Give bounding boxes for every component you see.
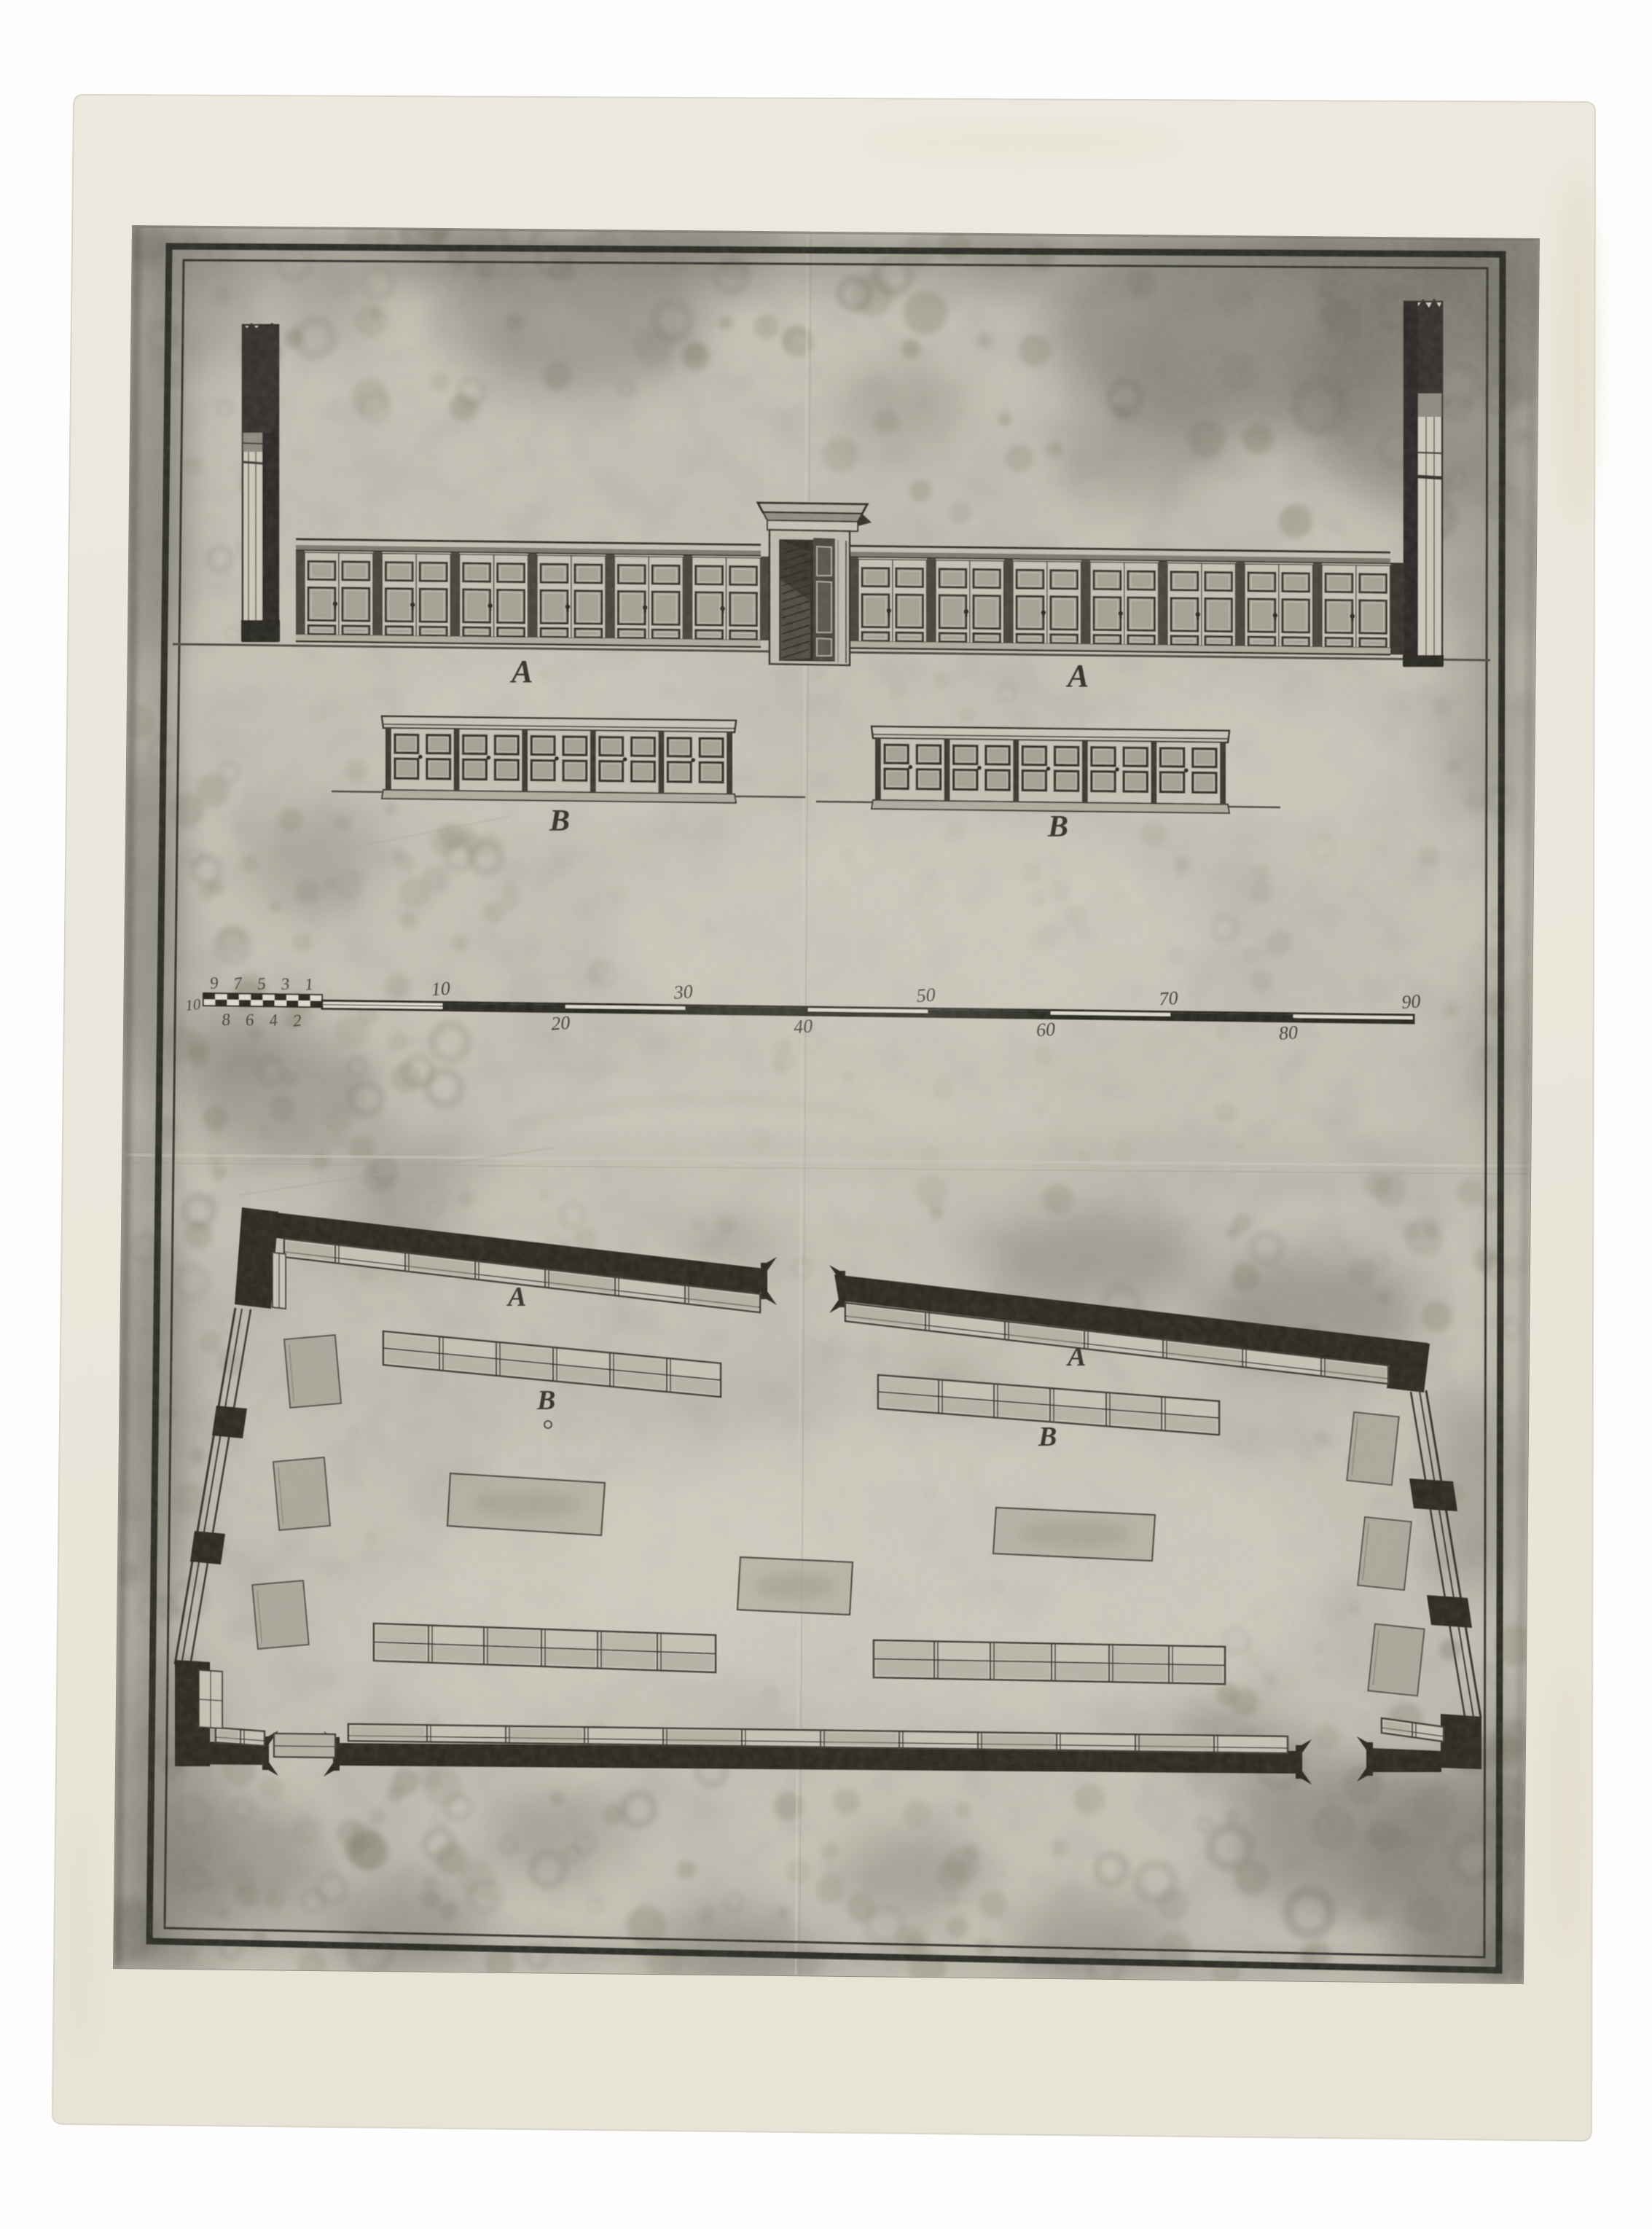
svg-text:B: B: [1047, 810, 1068, 844]
svg-text:3: 3: [279, 974, 290, 993]
svg-text:A: A: [506, 1282, 526, 1312]
svg-text:30: 30: [673, 981, 694, 1003]
svg-text:10: 10: [184, 995, 202, 1014]
svg-text:B: B: [1038, 1422, 1057, 1452]
svg-text:A: A: [1066, 1341, 1086, 1372]
svg-text:60: 60: [1036, 1019, 1056, 1041]
svg-text:80: 80: [1278, 1022, 1299, 1044]
svg-text:A: A: [1065, 658, 1089, 694]
svg-text:B: B: [536, 1385, 555, 1416]
svg-text:10: 10: [431, 978, 451, 1000]
svg-text:20: 20: [550, 1012, 571, 1035]
svg-text:90: 90: [1401, 990, 1421, 1013]
svg-text:70: 70: [1159, 987, 1179, 1010]
svg-text:A: A: [509, 654, 533, 689]
svg-text:50: 50: [916, 984, 936, 1006]
svg-text:B: B: [549, 804, 570, 838]
svg-text:40: 40: [793, 1015, 813, 1038]
